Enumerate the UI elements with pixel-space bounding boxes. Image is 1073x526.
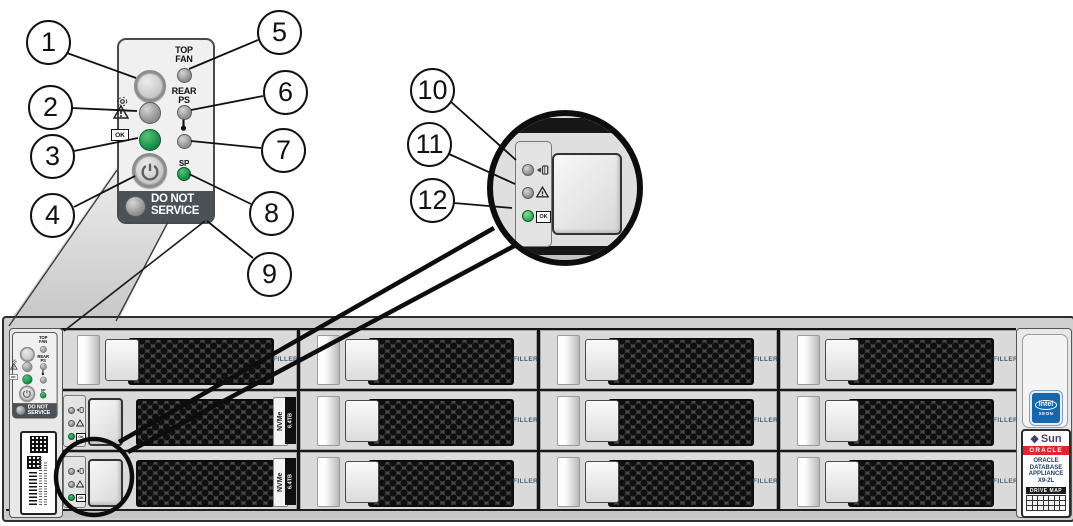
serial-microtext <box>39 457 42 505</box>
drive-fault-led <box>68 420 75 427</box>
drive-detail-magnifier: OK <box>487 110 643 266</box>
fault-icon <box>10 363 17 370</box>
filler-label: FILLER <box>753 331 778 388</box>
serial-label <box>20 431 57 515</box>
do-not-service-led <box>16 405 26 415</box>
callout-11: 11 <box>407 122 452 167</box>
drive-map-grid <box>1026 495 1066 511</box>
callout-3: 3 <box>30 134 75 179</box>
fault-led <box>22 362 32 372</box>
overtemp-led <box>40 377 47 384</box>
drive-led-strip: OK <box>63 395 86 447</box>
power-button <box>19 385 35 401</box>
fault-icon <box>536 186 549 198</box>
drive-led-strip: OK <box>515 141 552 247</box>
callout-9: 9 <box>247 252 292 297</box>
filler-label: FILLER <box>753 453 778 510</box>
magnifier-bottom-band <box>487 246 643 255</box>
filler-label: FILLER <box>513 392 538 449</box>
do-not-service-strip: DO NOTSERVICE <box>13 403 57 417</box>
drive-led-strip: OK <box>63 456 86 508</box>
filler-label: FILLER <box>753 392 778 449</box>
right-ear: intel XEON ◆Sun ORACLE ORACLE DATABASE A… <box>1016 328 1072 518</box>
drive-fault-led <box>68 481 75 488</box>
filler-mesh <box>128 338 274 385</box>
drive-bay-nvme: OK NVMe 6.4TB <box>60 391 297 450</box>
top-fan-label: TOPFAN <box>169 46 199 63</box>
callout-10: 10 <box>410 68 455 113</box>
drive-ready-to-remove-led <box>522 164 534 176</box>
drive-bay-filler: FILLER <box>540 330 777 389</box>
callout-8: 8 <box>249 191 294 236</box>
power-glyph-spacer <box>23 350 32 359</box>
drive-latch-button <box>88 459 123 507</box>
power-icon <box>139 160 161 182</box>
filler-mesh <box>608 460 754 507</box>
filler-mesh <box>608 399 754 446</box>
front-panel-detail: OK TOPFAN REARPS SP DO NOTSERVICE <box>117 38 215 224</box>
filler-release-handle <box>825 461 859 503</box>
drive-capacity-label: 6.4TB <box>285 458 296 505</box>
ready-to-remove-icon <box>76 406 84 414</box>
callout-12: 12 <box>410 178 455 223</box>
filler-latch-bar <box>317 396 340 446</box>
drive-ok-led <box>68 433 75 440</box>
filler-release-handle <box>345 461 379 503</box>
filler-latch-bar <box>557 457 580 507</box>
magnifier-top-band <box>487 118 643 133</box>
fault-led <box>139 102 161 124</box>
product-name: ORACLE DATABASE APPLIANCE X9-2L <box>1023 458 1069 484</box>
sp-led <box>177 167 191 181</box>
chassis-bottom-rail <box>6 509 1071 518</box>
drive-bay-filler: FILLER <box>780 452 1017 511</box>
left-ear: OK TOPFAN REARPS SP DO NOTSERVICE <box>9 328 63 518</box>
fault-icon <box>76 419 84 427</box>
drive-ok-label: OK <box>536 211 551 223</box>
filler-label: FILLER <box>513 453 538 510</box>
filler-release-handle <box>345 400 379 442</box>
filler-release-handle <box>585 400 619 442</box>
filler-label: FILLER <box>513 331 538 388</box>
do-not-service-led <box>125 196 146 217</box>
locate-button <box>20 347 35 362</box>
overtemp-icon <box>41 369 45 375</box>
magnifier-lower-area <box>487 255 643 266</box>
filler-latch-bar <box>317 457 340 507</box>
ready-to-remove-icon <box>76 467 84 475</box>
drive-mesh <box>136 399 275 446</box>
overtemp-led <box>177 134 192 149</box>
drive-ok-label: OK <box>76 433 86 441</box>
drive-ok-label: OK <box>76 494 86 502</box>
drive-bay-nvme: OK NVMe 6.4TB <box>60 452 297 511</box>
drive-bay-filler: FILLER <box>780 330 1017 389</box>
fault-icon <box>76 480 84 488</box>
overtemp-icon <box>179 118 188 131</box>
intel-xeon-badge: intel XEON <box>1030 391 1062 425</box>
hardware-diagram: FILLER FILLER FILLER FILLER <box>0 0 1073 526</box>
filler-mesh <box>368 460 514 507</box>
barcode <box>29 471 37 505</box>
callout-4: 4 <box>30 193 75 238</box>
filler-label: FILLER <box>993 331 1018 388</box>
drive-mesh <box>136 460 275 507</box>
sp-led <box>40 392 47 399</box>
filler-mesh <box>608 338 754 385</box>
drive-latch-button <box>88 398 123 446</box>
callout-2: 2 <box>28 85 73 130</box>
filler-latch-bar <box>797 457 820 507</box>
fault-icon <box>113 105 129 119</box>
drive-fault-led <box>522 187 534 199</box>
filler-release-handle <box>585 461 619 503</box>
rear-ps-label: REARPS <box>169 87 199 104</box>
drive-bay-filler: FILLER <box>300 330 537 389</box>
drive-bay-filler: FILLER <box>540 391 777 450</box>
ok-led-label: OK <box>111 129 129 141</box>
oracle-red-bar: ORACLE <box>1023 446 1069 455</box>
callout-6: 6 <box>263 70 308 115</box>
drive-ok-led <box>68 494 75 501</box>
filler-latch-bar <box>317 335 340 385</box>
do-not-service-label: DO NOTSERVICE <box>151 194 199 217</box>
sun-logo: ◆Sun <box>1023 431 1069 446</box>
xeon-label: XEON <box>1039 411 1054 416</box>
locate-button <box>134 70 166 102</box>
drive-bay-filler: FILLER <box>60 330 297 389</box>
callout-7: 7 <box>261 128 306 173</box>
drive-bay-filler: FILLER <box>300 452 537 511</box>
rear-ps-label: REARPS <box>36 355 50 363</box>
ready-to-remove-icon <box>536 164 549 176</box>
power-icon <box>22 388 32 398</box>
oracle-product-label: ◆Sun ORACLE ORACLE DATABASE APPLIANCE X9… <box>1021 429 1071 518</box>
filler-mesh <box>368 399 514 446</box>
filler-mesh <box>848 338 994 385</box>
ok-led-label: OK <box>9 374 17 380</box>
filler-mesh <box>848 399 994 446</box>
drive-capacity-label: 6.4TB <box>285 397 296 444</box>
filler-release-handle <box>585 339 619 381</box>
callout-5: 5 <box>257 10 302 55</box>
filler-latch-bar <box>797 396 820 446</box>
filler-mesh <box>848 460 994 507</box>
locate-icon <box>117 96 128 107</box>
top-fan-label: TOPFAN <box>36 336 50 344</box>
mini-control-panel: OK TOPFAN REARPS SP DO NOTSERVICE <box>12 332 58 418</box>
top-fan-led <box>40 346 47 353</box>
filler-latch-bar <box>797 335 820 385</box>
intel-logo: intel <box>1035 400 1057 410</box>
drive-ok-led <box>522 210 534 222</box>
server-chassis: FILLER FILLER FILLER FILLER <box>2 316 1073 522</box>
filler-release-handle <box>345 339 379 381</box>
filler-mesh <box>368 338 514 385</box>
drive-bay-filler: FILLER <box>540 452 777 511</box>
drive-bay-filler: FILLER <box>300 391 537 450</box>
drive-bay-filler: FILLER <box>780 391 1017 450</box>
qr-code <box>30 436 48 453</box>
drive-ready-to-remove-led <box>68 468 75 475</box>
filler-label: FILLER <box>273 331 298 388</box>
top-fan-led <box>177 68 192 83</box>
do-not-service-label: DO NOTSERVICE <box>28 405 50 416</box>
drive-latch-button <box>552 153 622 235</box>
filler-latch-bar <box>557 335 580 385</box>
do-not-service-strip: DO NOTSERVICE <box>119 191 213 222</box>
serial-microtext <box>44 461 47 505</box>
power-button <box>132 153 167 188</box>
filler-latch-bar <box>557 396 580 446</box>
filler-label: FILLER <box>993 392 1018 449</box>
callout-1: 1 <box>26 20 71 65</box>
filler-release-handle <box>825 400 859 442</box>
ok-led <box>139 129 161 151</box>
filler-release-handle <box>105 339 139 381</box>
drive-map-header: DRIVE MAP <box>1026 487 1066 494</box>
filler-release-handle <box>825 339 859 381</box>
drive-ready-to-remove-led <box>68 407 75 414</box>
ok-led <box>22 374 32 384</box>
filler-latch-bar <box>77 335 100 385</box>
filler-label: FILLER <box>993 453 1018 510</box>
